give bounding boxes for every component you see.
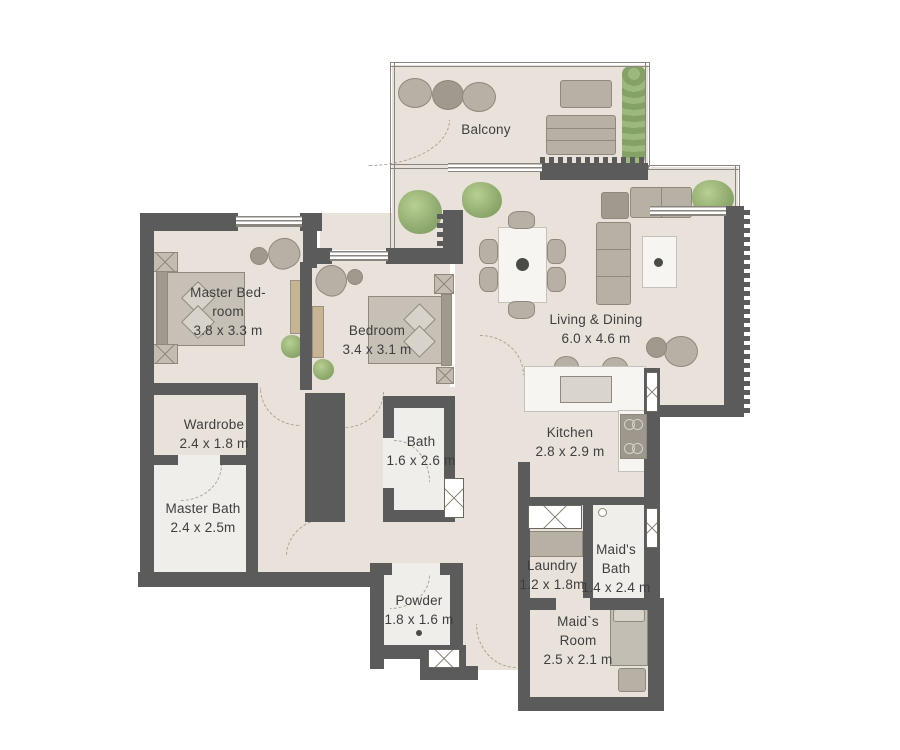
laundry-cabinet xyxy=(528,505,582,529)
balcony-chair xyxy=(398,78,432,108)
living-dining-label: Living & Dining 6.0 x 4.6 m xyxy=(549,310,642,348)
side-table xyxy=(601,192,629,219)
balcony-label: Balcony xyxy=(461,120,510,139)
pouf xyxy=(250,247,268,265)
room-name-line: Room xyxy=(544,631,613,650)
kitchen-label: Kitchen 2.8 x 2.9 m xyxy=(536,423,605,461)
wall xyxy=(140,213,154,585)
wall xyxy=(518,598,530,703)
dining-chair xyxy=(508,301,535,319)
wall xyxy=(138,572,374,587)
room-dims: 3.8 x 3.3 m xyxy=(190,321,266,340)
balcony-railing-top xyxy=(390,62,650,67)
balcony-sofa xyxy=(546,115,616,155)
room-dims: 2.4 x 1.8 m xyxy=(180,434,249,453)
shaft-door xyxy=(444,478,464,518)
wall xyxy=(443,210,463,264)
wall xyxy=(140,383,258,395)
balcony-chair xyxy=(432,80,464,110)
dining-chair xyxy=(547,239,566,264)
wall xyxy=(246,465,258,574)
room-dims: 1.2 x 1.8m xyxy=(519,575,584,594)
sliding-door xyxy=(448,163,542,172)
door-opening xyxy=(178,455,220,465)
room-name: Living & Dining xyxy=(549,310,642,329)
master-bath-label: Master Bath 2.4 x 2.5m xyxy=(166,499,241,537)
wall xyxy=(310,248,332,264)
balcony-railing-bottom-left xyxy=(390,164,452,169)
bed-headboard xyxy=(441,294,452,366)
laundry-label: Laundry 1.2 x 1.8m xyxy=(519,556,584,594)
balcony-chair xyxy=(462,82,496,112)
window xyxy=(330,251,388,261)
room-name-line: Maid's xyxy=(582,540,651,559)
room-name: Wardrobe xyxy=(180,415,249,434)
terrace-railing-top xyxy=(648,165,740,170)
room-name-line: Master Bed- xyxy=(190,283,266,302)
room-name-line: Bath xyxy=(582,559,651,578)
floor-plan: Balcony Master Bed- room 3.8 x 3.3 m Bed… xyxy=(0,0,900,750)
window xyxy=(236,216,302,227)
balcony-planter xyxy=(622,66,646,164)
room-dims: 3.4 x 3.1 m xyxy=(343,340,412,359)
burner xyxy=(632,443,643,454)
shaft-door xyxy=(428,649,460,668)
dining-chair xyxy=(508,211,535,229)
door-opening xyxy=(392,563,440,575)
room-name: Powder xyxy=(385,591,454,610)
wall xyxy=(140,213,238,231)
kitchen-sink xyxy=(560,376,612,403)
balcony-railing-left xyxy=(390,62,395,252)
coffee-table-decor xyxy=(654,258,663,267)
service-door xyxy=(646,372,658,412)
maids-bath-label: Maid's Bath 1.4 x 2.4 m xyxy=(582,540,651,597)
bath-label: Bath 1.6 x 2.6 m xyxy=(387,432,456,470)
lounge-chair xyxy=(664,336,698,367)
room-name-line: Maid`s xyxy=(544,612,613,631)
maids-room-label: Maid`s Room 2.5 x 2.1 m xyxy=(544,612,613,669)
room-name: Kitchen xyxy=(536,423,605,442)
washing-machine xyxy=(529,531,583,557)
master-bedroom-label: Master Bed- room 3.8 x 3.3 m xyxy=(190,283,266,340)
room-name: Balcony xyxy=(461,120,510,139)
nightstand xyxy=(434,274,454,294)
room-name: Laundry xyxy=(519,556,584,575)
sofa xyxy=(596,222,631,305)
room-dims: 6.0 x 4.6 m xyxy=(549,329,642,348)
plant xyxy=(462,182,502,218)
wall-hatch xyxy=(744,210,750,413)
wall xyxy=(518,697,664,711)
wall xyxy=(650,405,744,417)
bedroom-label: Bedroom 3.4 x 3.1 m xyxy=(343,321,412,359)
room-dims: 1.6 x 2.6 m xyxy=(387,451,456,470)
door-opening xyxy=(556,598,590,610)
pouf xyxy=(646,337,667,358)
powder-label: Powder 1.8 x 1.6 m xyxy=(385,591,454,629)
shower-head xyxy=(598,508,607,517)
stove xyxy=(620,414,647,459)
bench xyxy=(312,306,324,358)
balcony-railing-right xyxy=(645,62,650,167)
nightstand xyxy=(152,344,178,364)
wall-hatch xyxy=(437,214,443,260)
room-name-line: room xyxy=(190,302,266,321)
closet-wall xyxy=(305,393,345,522)
table-centerpiece xyxy=(516,258,529,271)
nightstand xyxy=(152,252,178,272)
room-dims: 1.8 x 1.6 m xyxy=(385,610,454,629)
balcony-table xyxy=(560,80,612,108)
burner xyxy=(632,419,643,430)
nightstand xyxy=(436,367,454,384)
dining-chair xyxy=(479,267,498,292)
nightstand xyxy=(618,668,646,692)
wall xyxy=(540,163,648,180)
exterior-ledge-floor xyxy=(320,213,392,250)
dining-chair xyxy=(547,267,566,292)
room-dims: 1.4 x 2.4 m xyxy=(582,578,651,597)
pouf xyxy=(347,269,363,285)
wardrobe-label: Wardrobe 2.4 x 1.8 m xyxy=(180,415,249,453)
plant xyxy=(313,359,334,380)
room-dims: 2.4 x 2.5m xyxy=(166,518,241,537)
pillow xyxy=(613,609,645,622)
window xyxy=(650,206,726,216)
room-dims: 2.8 x 2.9 m xyxy=(536,442,605,461)
room-name: Bedroom xyxy=(343,321,412,340)
wall xyxy=(300,262,312,390)
wall xyxy=(420,666,478,680)
room-dims: 2.5 x 2.1 m xyxy=(544,650,613,669)
wall xyxy=(648,598,664,703)
plant xyxy=(398,190,442,234)
room-name: Master Bath xyxy=(166,499,241,518)
wall xyxy=(724,206,744,417)
faucet xyxy=(416,630,422,636)
room-name: Bath xyxy=(387,432,456,451)
dining-chair xyxy=(479,239,498,264)
